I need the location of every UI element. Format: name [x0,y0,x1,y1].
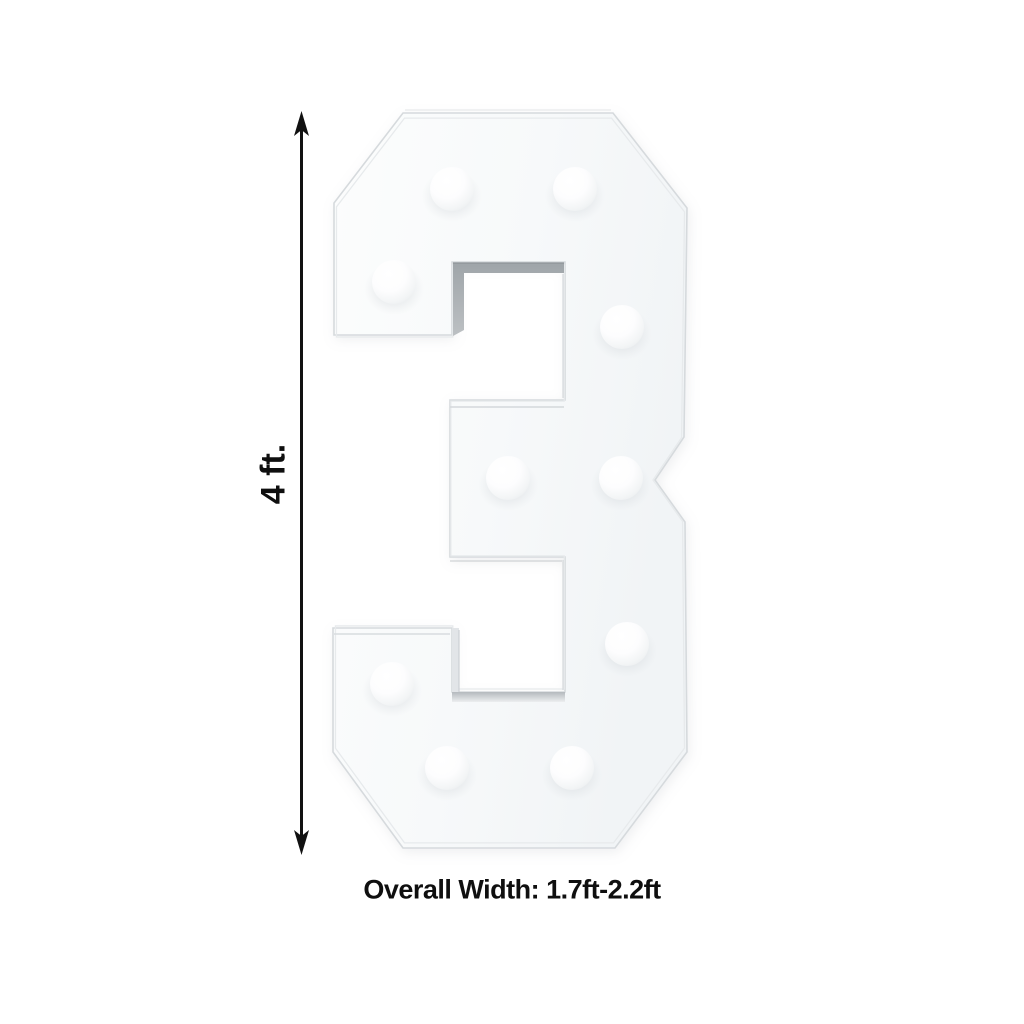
foot-right-wall-lip [452,628,459,692]
lower-counter-floor-lip [452,692,565,702]
height-dimension-arrow [294,111,309,855]
height-dimension-label: 4 ft. [255,444,294,504]
product-dimension-diagram: 4 ft. Overall Width: 1.7ft-2.2ft [0,0,1024,1024]
upper-counter-wall-shadow [453,263,564,336]
marquee-number-figure [0,0,1024,1024]
width-dimension-label: Overall Width: 1.7ft-2.2ft [363,875,660,906]
